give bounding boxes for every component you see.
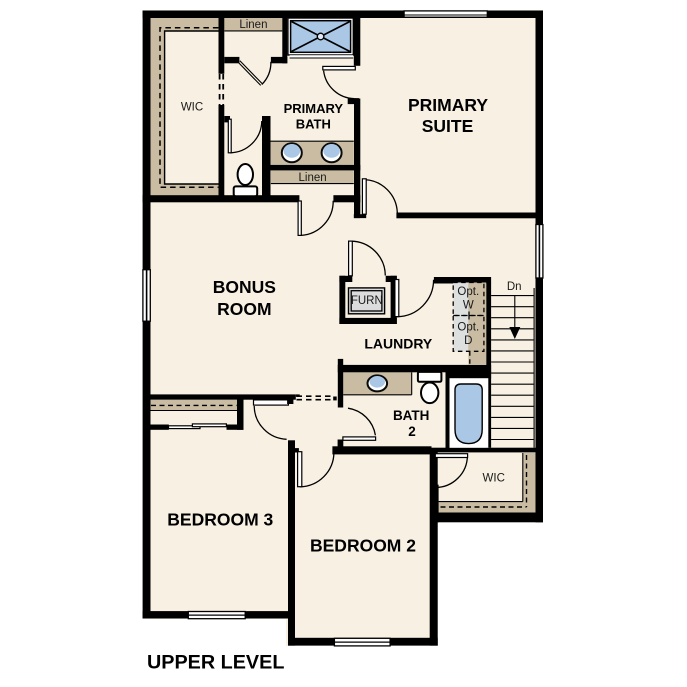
svg-text:BATH: BATH (393, 408, 430, 423)
svg-text:BEDROOM 2: BEDROOM 2 (310, 536, 416, 556)
svg-text:Dn: Dn (507, 281, 522, 293)
svg-text:BATH: BATH (296, 116, 331, 131)
svg-text:Opt.: Opt. (457, 322, 479, 334)
svg-text:W: W (463, 299, 474, 311)
svg-text:FURN: FURN (351, 295, 383, 307)
svg-text:WIC: WIC (483, 473, 505, 485)
svg-text:D: D (464, 335, 472, 347)
svg-text:Linen: Linen (299, 172, 327, 184)
svg-text:2: 2 (408, 424, 416, 439)
svg-text:BONUS: BONUS (213, 277, 276, 297)
svg-text:Opt.: Opt. (457, 286, 479, 298)
svg-text:PRIMARY: PRIMARY (408, 95, 488, 115)
svg-text:PRIMARY: PRIMARY (284, 101, 344, 116)
svg-text:ROOM: ROOM (217, 299, 271, 319)
svg-text:BEDROOM 3: BEDROOM 3 (167, 510, 273, 530)
svg-text:UPPER LEVEL: UPPER LEVEL (147, 652, 284, 674)
svg-text:WIC: WIC (181, 102, 203, 114)
svg-text:Linen: Linen (239, 19, 267, 31)
svg-text:LAUNDRY: LAUNDRY (364, 335, 433, 351)
svg-text:SUITE: SUITE (422, 116, 474, 136)
